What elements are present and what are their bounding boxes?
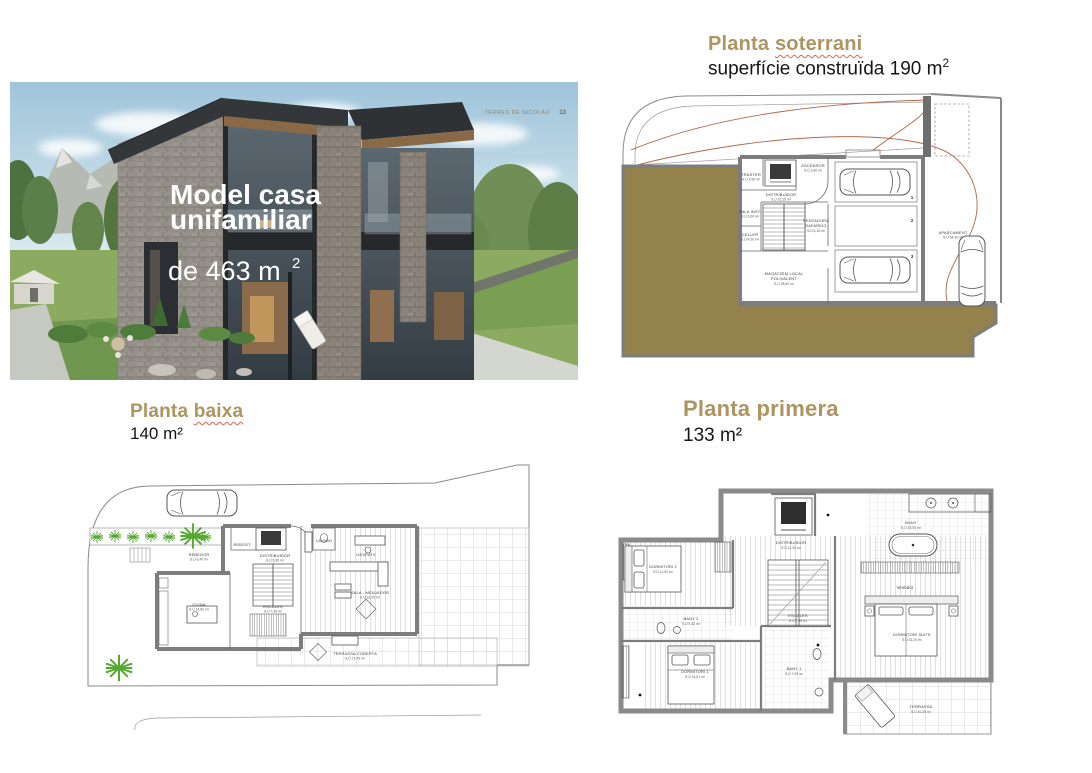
stone-column-right	[400, 152, 426, 322]
svg-text:DORMITORI 1: DORMITORI 1	[681, 669, 709, 674]
svg-text:S.Ú 31,05 m²: S.Ú 31,05 m²	[360, 595, 381, 600]
stairs-icon	[763, 204, 805, 250]
soterrani-title: Planta soterrani	[708, 33, 862, 56]
soterrani-subtitle-text: superfície construïda 190 m	[708, 58, 942, 79]
svg-text:S.Ú 15,05 m²: S.Ú 15,05 m²	[901, 525, 922, 530]
svg-text:S.Ú 21,45 m²: S.Ú 21,45 m²	[345, 656, 366, 661]
svg-text:S.Ú 10,25 m²: S.Ú 10,25 m²	[771, 197, 792, 202]
bed-icon	[625, 546, 681, 592]
svg-text:ESCALES: ESCALES	[788, 613, 808, 618]
svg-text:S.Ú 4,20 m²: S.Ú 4,20 m²	[741, 237, 760, 242]
svg-text:S.Ú 10,39 m²: S.Ú 10,39 m²	[911, 709, 932, 714]
svg-text:ESCALES: ESCALES	[263, 604, 283, 609]
svg-text:S.Ú 28,60 m²: S.Ú 28,60 m²	[774, 281, 795, 286]
svg-text:DISTRIBUÏDOR: DISTRIBUÏDOR	[776, 540, 806, 545]
terrace-tiles	[257, 638, 497, 666]
svg-text:TERRASSA COBERTA: TERRASSA COBERTA	[333, 651, 377, 656]
svg-text:S.Ú 7,09 m²: S.Ú 7,09 m²	[785, 671, 804, 676]
baixa-title-word: baixa	[194, 401, 244, 422]
svg-text:LAVABO: LAVABO	[316, 538, 332, 543]
svg-text:S.Ú 31,20 m²: S.Ú 31,20 m²	[902, 637, 923, 642]
svg-text:S.Ú 3,60 m²: S.Ú 3,60 m²	[741, 214, 760, 219]
svg-text:SAFAREIG: SAFAREIG	[805, 223, 826, 228]
elevator-icon	[775, 498, 812, 535]
plan-baixa: REBOST LAVABO REBEDOR S.Ú 6,40 m² DISTRI…	[83, 456, 535, 738]
svg-text:Vestidor: Vestidor	[896, 585, 913, 590]
photo-text-overlay: Model casa unifamiliar de 463 m 2	[168, 179, 321, 286]
plan-primera: DORMITORI 2 S.Ú 11,52 m² BANY 2 S.Ú 5,32…	[613, 478, 1013, 748]
svg-text:S.Ú 64,30 m²: S.Ú 64,30 m²	[943, 235, 964, 240]
svg-text:APARCAMENT: APARCAMENT	[939, 230, 968, 235]
elevator-icon	[765, 160, 796, 186]
primera-subtitle: 133 m²	[683, 425, 742, 447]
baixa-title: Planta baixa	[130, 401, 243, 423]
garden-table	[111, 337, 125, 351]
svg-text:DORMITORI 2: DORMITORI 2	[649, 564, 677, 569]
plan-soterrani: 1 2 3 TRASTER S.Ú 3,95 m² ASCENSOR S.Ú 2…	[613, 86, 1013, 380]
svg-text:S.Ú 14,80 m²: S.Ú 14,80 m²	[189, 607, 210, 612]
soterrani-subtitle: superfície construïda 190 m2	[708, 57, 949, 80]
road-line	[135, 715, 481, 730]
photo-area-superscript: 2	[292, 255, 300, 272]
soterrani-subtitle-sup: 2	[942, 57, 949, 70]
svg-text:BANY 2: BANY 2	[683, 616, 699, 621]
house	[108, 98, 474, 380]
svg-text:S.Ú 11,52 m²: S.Ú 11,52 m²	[653, 569, 674, 574]
primera-title: Planta primera	[683, 396, 839, 422]
curtain	[368, 162, 388, 222]
svg-text:DESPATX: DESPATX	[356, 552, 375, 557]
dashed-parking-area	[935, 104, 969, 156]
planter-strip	[90, 523, 223, 548]
slide-page: Model casa unifamiliar de 463 m 2 TERRES…	[0, 0, 1092, 773]
elevator-icon	[256, 528, 286, 550]
tree-icon	[106, 655, 132, 681]
svg-text:BANY 1: BANY 1	[786, 666, 802, 671]
dining-table	[250, 614, 286, 636]
soterrani-title-word: soterrani	[775, 33, 862, 55]
car-icon	[840, 257, 910, 283]
svg-text:CUINA: CUINA	[192, 602, 205, 607]
soterrani-title-prefix: Planta	[708, 33, 775, 55]
stall-number: 3	[911, 254, 914, 259]
svg-text:BANY: BANY	[905, 520, 917, 525]
exterior-steps	[130, 548, 150, 562]
svg-text:ASCENSOR: ASCENSOR	[801, 163, 825, 168]
svg-text:S.Ú 3,95 m²: S.Ú 3,95 m²	[742, 177, 761, 182]
photo-area-text: de 463 m	[168, 256, 281, 286]
svg-text:DISTRIBUÏDOR: DISTRIBUÏDOR	[766, 192, 796, 197]
svg-text:CELLER: CELLER	[742, 232, 758, 237]
svg-text:S.Ú 14,61 m²: S.Ú 14,61 m²	[685, 674, 706, 679]
svg-text:TRASTER: TRASTER	[741, 172, 761, 177]
bathtub-icon	[889, 534, 937, 556]
kitchen-fixtures	[159, 578, 217, 645]
sideboard	[305, 532, 312, 552]
svg-text:TERRASSA: TERRASSA	[910, 704, 933, 709]
svg-text:REBOST: REBOST	[233, 542, 251, 547]
svg-text:S.Ú 6,15 m²: S.Ú 6,15 m²	[807, 228, 826, 233]
svg-text:S.Ú 5,90 m²: S.Ú 5,90 m²	[266, 558, 285, 563]
svg-text:REBEDOR: REBEDOR	[189, 552, 210, 557]
photo-title-line2: unifamiliar	[170, 204, 312, 235]
bench	[332, 636, 358, 645]
svg-text:POLIVALENT: POLIVALENT	[771, 276, 797, 281]
house-photo: Model casa unifamiliar de 463 m 2 TERRES…	[10, 82, 578, 380]
baixa-title-prefix: Planta	[130, 401, 194, 422]
photo-corner-text: TERRES DE NICOLAU	[484, 110, 550, 116]
svg-text:S.Ú 11,30 m²: S.Ú 11,30 m²	[781, 545, 802, 550]
svg-text:S.Ú 6,40 m²: S.Ú 6,40 m²	[190, 557, 209, 562]
svg-text:SALA - MENJADOR: SALA - MENJADOR	[351, 590, 389, 595]
svg-text:DORMITORI SUITE: DORMITORI SUITE	[893, 632, 931, 637]
svg-text:S.Ú 7,39 m²: S.Ú 7,39 m²	[264, 609, 283, 614]
svg-text:S.Ú 5,32 m²: S.Ú 5,32 m²	[682, 621, 701, 626]
stairs-icon	[253, 564, 293, 606]
earth-fill	[623, 166, 996, 356]
stall-number: 1	[911, 195, 914, 200]
car-icon	[959, 236, 985, 306]
svg-text:SALA INST.: SALA INST.	[739, 209, 761, 214]
svg-text:S.Ú 7,39 m²: S.Ú 7,39 m²	[789, 618, 808, 623]
baixa-subtitle: 140 m²	[130, 424, 183, 444]
stall-number: 2	[911, 218, 914, 223]
car-icon	[840, 169, 910, 195]
svg-text:DISTRIBUÏDOR: DISTRIBUÏDOR	[260, 553, 290, 558]
photo-page-number: 13	[559, 110, 566, 116]
car-icon	[167, 490, 237, 516]
svg-text:S.Ú 2,80 m²: S.Ú 2,80 m²	[804, 168, 823, 173]
